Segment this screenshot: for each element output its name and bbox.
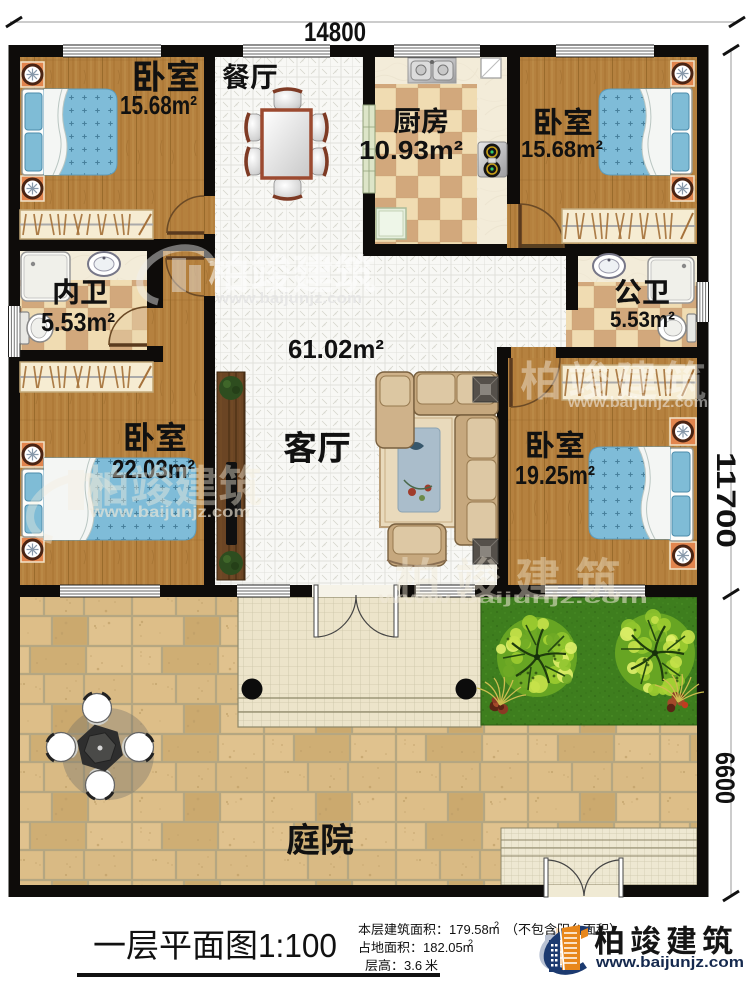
svg-text:3.6: 3.6 bbox=[404, 958, 422, 973]
svg-text:2: 2 bbox=[494, 920, 499, 930]
svg-text:www.baijunjz.com: www.baijunjz.com bbox=[595, 954, 744, 971]
svg-text:2: 2 bbox=[468, 938, 473, 948]
svg-text:6600: 6600 bbox=[710, 752, 740, 804]
svg-text:182.05m: 182.05m bbox=[423, 940, 474, 955]
svg-text:5.53m²: 5.53m² bbox=[610, 307, 675, 332]
svg-text:www.baijunjz.com: www.baijunjz.com bbox=[567, 394, 708, 411]
svg-text:15.68m²: 15.68m² bbox=[521, 136, 603, 162]
svg-text:www.baijunjz.com: www.baijunjz.com bbox=[89, 504, 250, 521]
svg-text:11700: 11700 bbox=[711, 452, 741, 548]
svg-text:1:100: 1:100 bbox=[258, 927, 337, 964]
svg-text:19.25m²: 19.25m² bbox=[515, 460, 595, 490]
svg-text:15.68m²: 15.68m² bbox=[120, 90, 197, 120]
svg-text:10.93m²: 10.93m² bbox=[359, 135, 463, 165]
svg-text:5.53m²: 5.53m² bbox=[41, 307, 115, 337]
svg-text:www.baijunjz.com: www.baijunjz.com bbox=[376, 590, 648, 607]
svg-text:www.baijunjz.com: www.baijunjz.com bbox=[215, 290, 362, 307]
svg-text:179.58m: 179.58m bbox=[449, 922, 500, 937]
svg-text:14800: 14800 bbox=[304, 17, 366, 47]
svg-text:61.02m²: 61.02m² bbox=[288, 334, 384, 364]
